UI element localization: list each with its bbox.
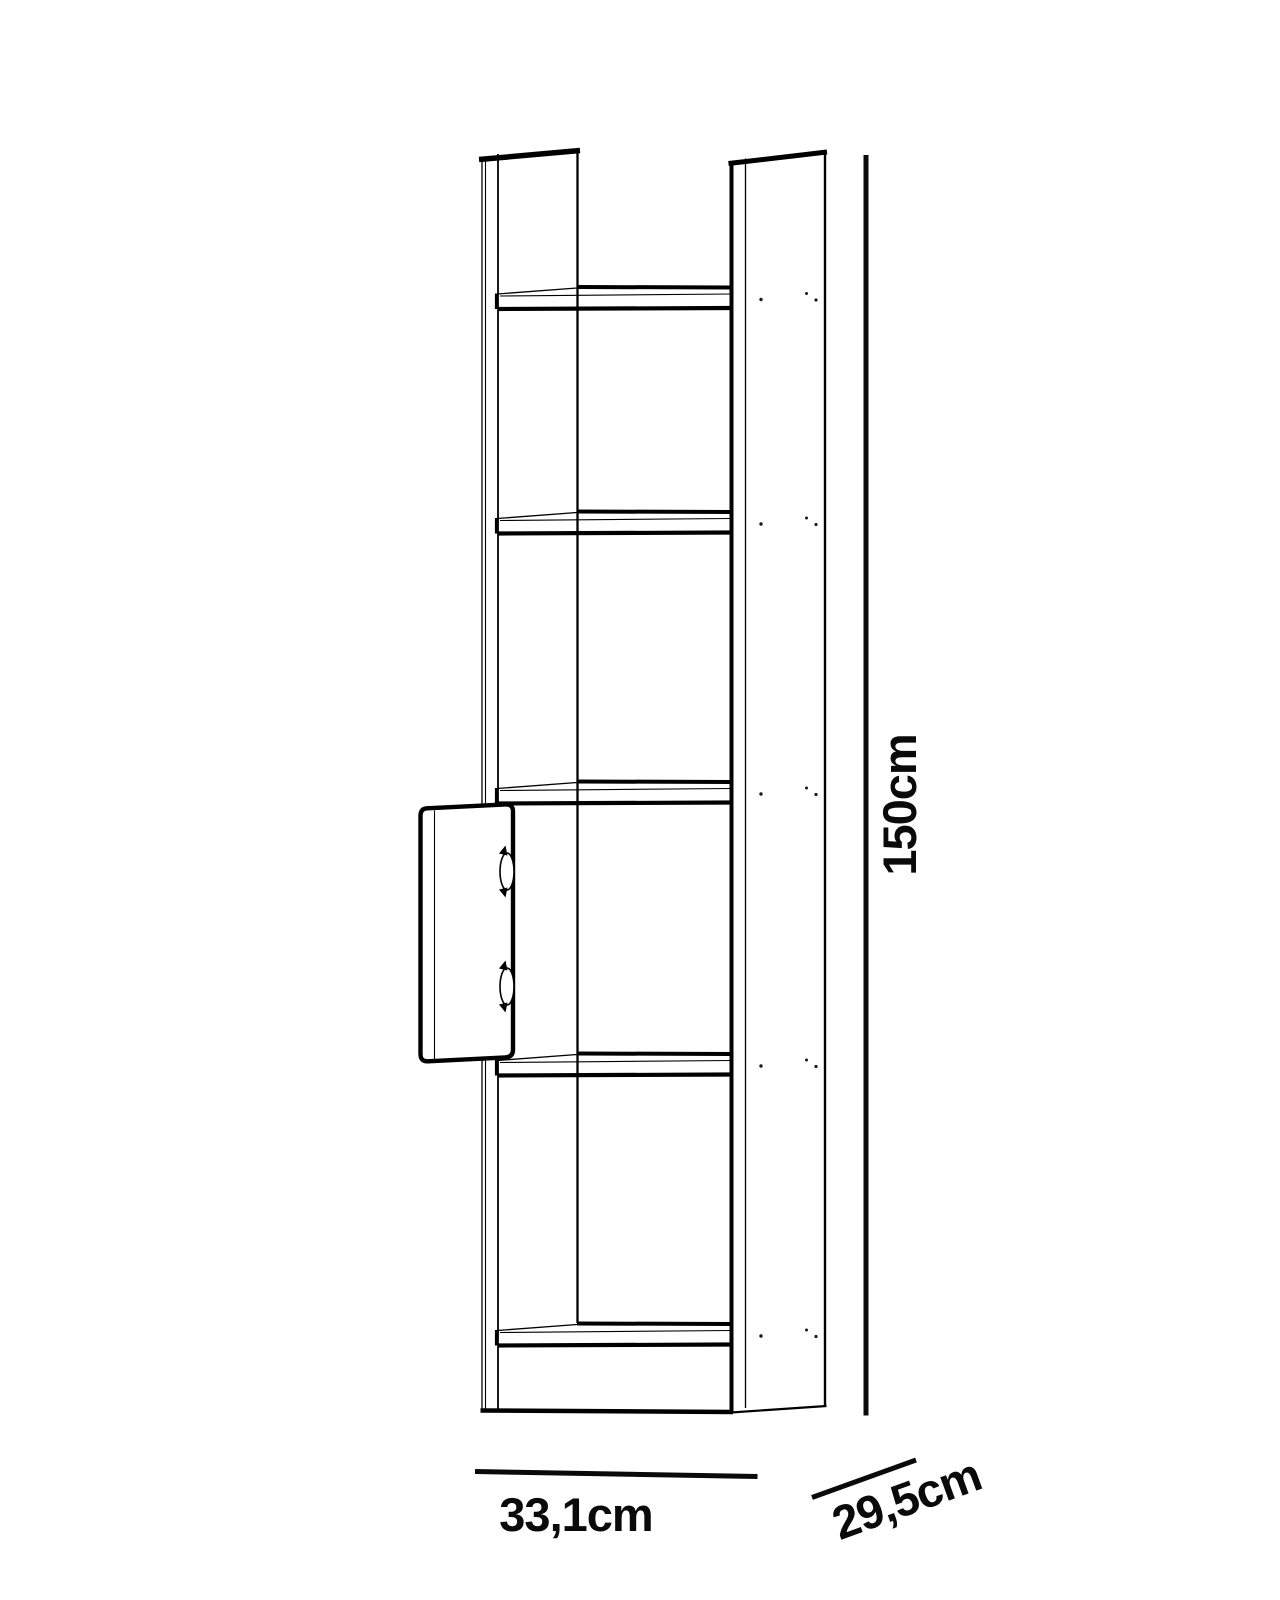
shelf-board — [496, 1054, 817, 1076]
shelf-top-edge — [577, 512, 732, 513]
bottom-board-edge — [481, 1411, 734, 1413]
fitting-mark — [759, 1064, 762, 1067]
shelf-board — [496, 1324, 817, 1346]
width-dimension-line — [475, 1472, 758, 1477]
shelf-bottom-edge — [498, 1345, 733, 1346]
shelf-front-top-edge — [498, 288, 578, 294]
bookcase-body — [479, 150, 827, 1413]
shelf-top-edge — [577, 287, 732, 288]
shelf-board — [496, 512, 817, 534]
left-side-panel — [479, 150, 580, 1411]
shelf-top-edge — [577, 782, 732, 783]
shelf-top-edge — [577, 1054, 732, 1055]
fitting-mark — [814, 1065, 817, 1068]
shelf-front-face-line — [500, 789, 731, 791]
shelf-front-face-line — [500, 1331, 731, 1333]
hinge-cam-ellipse — [500, 968, 514, 1005]
shelf-bottom-edge — [498, 533, 733, 534]
diagram-canvas: 150cm 33,1cm 29,5cm — [0, 0, 1280, 1600]
height-dimension-label: 150cm — [873, 734, 926, 875]
shelf-bottom-edge — [498, 308, 733, 309]
shelves — [496, 287, 817, 1346]
fitting-mark — [759, 792, 762, 795]
shelf-front-top-edge — [498, 513, 578, 519]
fitting-mark — [814, 1335, 817, 1338]
fitting-mark — [759, 298, 762, 301]
fitting-mark — [759, 1334, 762, 1337]
shelf-top-edge — [577, 1324, 732, 1325]
fitting-mark — [814, 793, 817, 796]
fitting-mark — [805, 1059, 808, 1062]
fitting-mark — [759, 522, 762, 525]
width-dimension-label: 33,1cm — [499, 1488, 652, 1541]
right-side-panel — [729, 152, 828, 1413]
shelf-board — [496, 782, 817, 804]
shelf-bottom-edge — [498, 803, 733, 804]
hinge-cam-ellipse — [500, 853, 514, 890]
shelf-front-face-line — [500, 519, 731, 521]
shelf-front-top-edge — [498, 1325, 578, 1331]
shelf-front-face-line — [500, 1061, 731, 1063]
shelf-bottom-edge — [498, 1075, 733, 1076]
fitting-mark — [814, 298, 817, 301]
fitting-mark — [805, 292, 808, 295]
fitting-mark — [814, 523, 817, 526]
bookcase-technical-drawing: 150cm 33,1cm 29,5cm — [0, 0, 1280, 1600]
cabinet-door-open — [421, 804, 515, 1061]
fitting-mark — [805, 517, 808, 520]
fitting-mark — [805, 787, 808, 790]
shelf-board — [496, 287, 817, 309]
shelf-front-top-edge — [498, 783, 578, 789]
right-panel-top-edge — [729, 152, 828, 164]
shelf-front-face-line — [500, 294, 731, 296]
left-panel-top-edge — [479, 151, 580, 160]
fitting-mark — [805, 1329, 808, 1332]
